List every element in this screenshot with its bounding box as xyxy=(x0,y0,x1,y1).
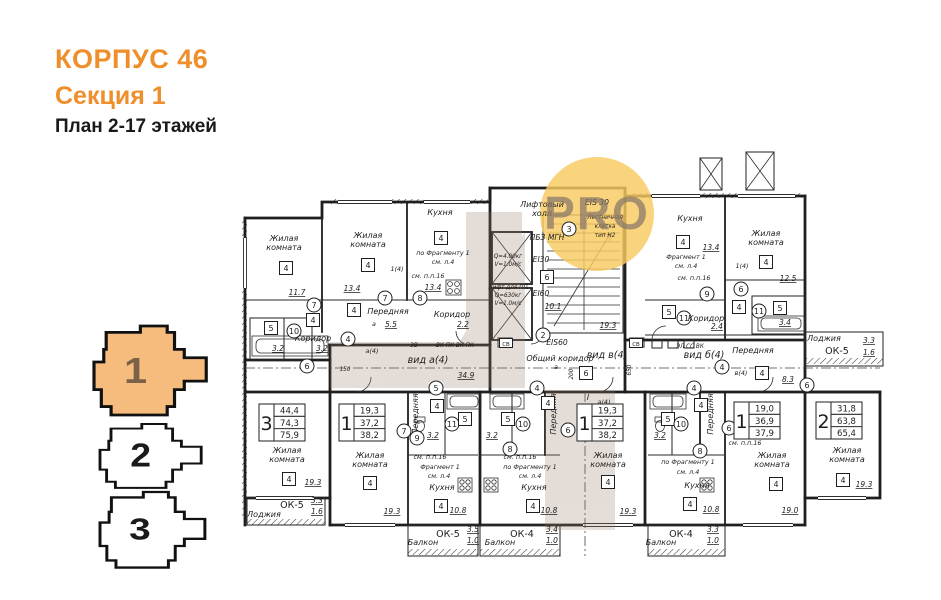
plan-label: Жилаякомната xyxy=(590,451,626,469)
svg-text:4: 4 xyxy=(763,258,768,267)
plan-label: 3.2 xyxy=(427,431,439,440)
svg-text:см. п.п.16: см. п.п.16 xyxy=(729,439,762,447)
plan-label: Кухня xyxy=(677,214,702,223)
svg-text:1.0: 1.0 xyxy=(467,536,479,545)
plan-label: см. п.п.16 xyxy=(678,274,711,282)
svg-text:19,0: 19,0 xyxy=(755,405,774,415)
plan-label: 3.3 xyxy=(311,496,323,505)
plan-label: 19.3 xyxy=(305,478,322,487)
svg-text:4: 4 xyxy=(534,384,539,393)
plan-label: 3.3 xyxy=(863,336,875,345)
svg-text:V=1.0м/с: V=1.0м/с xyxy=(494,262,522,268)
plan-label: 4 xyxy=(307,314,320,327)
svg-text:5: 5 xyxy=(777,304,782,313)
svg-text:4: 4 xyxy=(283,264,288,273)
svg-text:200: 200 xyxy=(569,368,575,379)
svg-text:13.4: 13.4 xyxy=(425,283,442,292)
svg-text:4: 4 xyxy=(840,476,845,485)
floor-plan-drawing: Жилаякомната411.77Жилаякомната413.471(4)… xyxy=(0,0,941,600)
plan-label: Общий коридор xyxy=(526,354,593,363)
svg-text:Жилаякомната: Жилаякомната xyxy=(829,446,865,464)
svg-text:1(4): 1(4) xyxy=(735,262,748,270)
svg-text:вид б(4): вид б(4) xyxy=(684,350,725,361)
svg-text:12.5: 12.5 xyxy=(780,274,797,283)
plan-label: Передняя xyxy=(411,393,420,435)
plan-label: 9 xyxy=(700,287,714,301)
plan-label: см. л.4 xyxy=(432,258,455,266)
svg-text:38,2: 38,2 xyxy=(598,431,617,441)
svg-text:2: 2 xyxy=(540,331,545,340)
plan-label: 6 xyxy=(541,271,554,284)
svg-text:19.3: 19.3 xyxy=(620,507,637,516)
plan-label: а xyxy=(554,363,558,371)
svg-text:1.6: 1.6 xyxy=(311,507,323,516)
svg-text:Передняя: Передняя xyxy=(367,307,409,316)
plan-label: 5 xyxy=(502,413,515,426)
svg-text:1(4): 1(4) xyxy=(390,265,403,273)
plan-label: 200 xyxy=(569,368,575,379)
plan-label: 6 xyxy=(561,423,575,437)
svg-text:150: 150 xyxy=(340,367,351,373)
svg-text:5: 5 xyxy=(666,308,671,317)
svg-text:19.0: 19.0 xyxy=(782,506,799,515)
svg-text:10: 10 xyxy=(518,420,528,429)
plan-label: Кухня xyxy=(427,208,452,217)
svg-text:34.9: 34.9 xyxy=(458,371,475,380)
plan-label: 5 xyxy=(662,413,675,426)
svg-text:Передняя: Передняя xyxy=(411,393,420,435)
plan-label: 10 xyxy=(287,324,301,338)
svg-text:44,4: 44,4 xyxy=(280,407,299,417)
svg-text:6: 6 xyxy=(544,273,549,282)
svg-text:6: 6 xyxy=(804,381,809,390)
svg-text:13.4: 13.4 xyxy=(344,284,361,293)
plan-label: Q=4.00кг xyxy=(494,254,523,260)
svg-text:EI60: EI60 xyxy=(533,289,550,298)
plan-label: 5 xyxy=(459,413,472,426)
svg-text:Балкон: Балкон xyxy=(485,538,515,547)
svg-text:10.1: 10.1 xyxy=(545,302,562,311)
svg-text:а(4): а(4) xyxy=(366,347,379,355)
svg-text:вид в(4): вид в(4) xyxy=(587,350,627,361)
plan-label: 34.9 xyxy=(458,371,475,380)
svg-text:Лоджия: Лоджия xyxy=(806,334,841,343)
plan-label: Жилаякомната xyxy=(754,451,790,469)
plan-label: 10.8 xyxy=(703,505,720,514)
plan-label: вид в(4) xyxy=(587,350,627,361)
svg-text:6: 6 xyxy=(726,424,731,433)
svg-text:Жилаякомната: Жилаякомната xyxy=(590,451,626,469)
plan-label: Лоджия xyxy=(246,510,281,519)
svg-text:Коридор: Коридор xyxy=(295,334,331,343)
plan-label: 13.4 xyxy=(344,284,361,293)
svg-text:4: 4 xyxy=(680,238,685,247)
svg-text:38,2: 38,2 xyxy=(360,431,379,441)
plan-label: 1.0 xyxy=(546,536,558,545)
svg-text:Жилаякомната: Жилаякомната xyxy=(350,231,386,249)
svg-text:4: 4 xyxy=(367,479,372,488)
plan-label: по Фрагменту 1 xyxy=(503,463,556,471)
svg-text:ВК ПК ВК ПК: ВК ПК ВК ПК xyxy=(436,343,475,349)
svg-text:Жилаякомната: Жилаякомната xyxy=(748,229,784,247)
plan-label: 13.4 xyxy=(703,243,720,252)
plan-label: 19.3 xyxy=(856,480,873,489)
plan-label: 4 xyxy=(364,477,377,490)
plan-label: см. л.4 xyxy=(519,472,542,480)
svg-text:5: 5 xyxy=(268,324,273,333)
plan-label: Коридор xyxy=(434,310,470,319)
plan-label: 7 xyxy=(397,424,411,438)
plan-label: 4 xyxy=(435,500,448,513)
svg-text:1: 1 xyxy=(340,413,352,435)
plan-label: 650 xyxy=(627,364,633,375)
plan-label: 6 xyxy=(800,378,814,392)
svg-text:4: 4 xyxy=(773,480,778,489)
plan-label: 4 xyxy=(283,473,296,486)
plan-label: 4 xyxy=(837,474,850,487)
plan-label: 4 xyxy=(602,476,615,489)
plan-label: вид б(4) xyxy=(684,350,725,361)
plan-label: Лоджия xyxy=(806,334,841,343)
svg-text:Фрагмент 1: Фрагмент 1 xyxy=(666,253,706,261)
plan-label: 1.0 xyxy=(467,536,479,545)
plan-label: а xyxy=(372,320,376,328)
svg-text:8: 8 xyxy=(697,447,702,456)
plan-label: 4 xyxy=(695,399,708,412)
plan-label: 4 xyxy=(280,262,293,275)
svg-text:4: 4 xyxy=(687,500,692,509)
plan-label: 4 xyxy=(756,367,769,380)
plan-label: Лифт для ПП xyxy=(487,285,528,291)
svg-text:EIS60: EIS60 xyxy=(546,338,568,347)
svg-text:11: 11 xyxy=(754,307,764,316)
svg-text:4: 4 xyxy=(286,475,291,484)
plan-label: 5.5 xyxy=(385,320,397,329)
plan-label: по Фрагменту 1 xyxy=(661,458,714,466)
plan-label: Балкон xyxy=(408,538,438,547)
svg-text:по Фрагменту 1: по Фрагменту 1 xyxy=(503,463,556,471)
plan-label: 3.2 xyxy=(272,344,284,353)
svg-text:37,9: 37,9 xyxy=(755,429,774,439)
svg-text:8: 8 xyxy=(417,294,422,303)
svg-text:Кухня: Кухня xyxy=(521,483,546,492)
plan-label: EIS60 xyxy=(546,338,568,347)
svg-text:650: 650 xyxy=(627,364,633,375)
svg-text:63,8: 63,8 xyxy=(837,417,856,427)
svg-text:Кухня: Кухня xyxy=(677,214,702,223)
svg-text:по Фрагменту 1: по Фрагменту 1 xyxy=(416,249,469,257)
svg-text:19,3: 19,3 xyxy=(598,407,617,417)
plan-label: 5 xyxy=(774,302,787,315)
svg-text:Лифт для ПП: Лифт для ПП xyxy=(487,285,528,291)
plan-label: 4 xyxy=(542,397,555,410)
plan-label: см. л.4 xyxy=(428,472,451,480)
plan-label: 4 xyxy=(341,332,355,346)
svg-text:7: 7 xyxy=(311,301,316,310)
svg-text:11.7: 11.7 xyxy=(289,288,306,297)
svg-text:Жилаякомната: Жилаякомната xyxy=(269,446,305,464)
svg-text:6: 6 xyxy=(738,285,743,294)
svg-text:3.3: 3.3 xyxy=(863,336,875,345)
plan-label: 4 xyxy=(684,498,697,511)
svg-text:см. л.4: см. л.4 xyxy=(519,472,542,480)
svg-text:9: 9 xyxy=(414,434,419,443)
svg-text:см. л.4: см. л.4 xyxy=(428,472,451,480)
svg-text:19.3: 19.3 xyxy=(856,480,873,489)
svg-text:8.3: 8.3 xyxy=(782,375,794,384)
watermark-pro-text: PRO xyxy=(544,187,650,239)
svg-text:3.2: 3.2 xyxy=(272,344,284,353)
plan-label: см. п.п.16 xyxy=(729,439,762,447)
plan-label: 4 xyxy=(530,381,544,395)
svg-text:74,3: 74,3 xyxy=(280,419,299,429)
plan-label: 5 xyxy=(429,381,443,395)
svg-text:Балкон: Балкон xyxy=(646,538,676,547)
plan-label: 9 xyxy=(410,431,424,445)
plan-label: 4 xyxy=(770,478,783,491)
svg-text:75,9: 75,9 xyxy=(280,431,299,441)
svg-text:см. п.п.16: см. п.п.16 xyxy=(678,274,711,282)
svg-text:4: 4 xyxy=(351,306,356,315)
plan-label: 6 xyxy=(300,359,314,373)
svg-text:3.3: 3.3 xyxy=(311,496,323,505)
plan-label: Q=630кг xyxy=(495,293,523,299)
svg-text:4: 4 xyxy=(691,384,696,393)
svg-text:5: 5 xyxy=(505,415,510,424)
plan-label: Жилаякомната xyxy=(266,234,302,252)
svg-text:см. л.4: см. л.4 xyxy=(432,258,455,266)
svg-text:вид а(4): вид а(4) xyxy=(408,355,449,366)
svg-text:4: 4 xyxy=(605,478,610,487)
plan-label: Передняя xyxy=(367,307,409,316)
svg-text:2.2: 2.2 xyxy=(457,320,469,329)
plan-label: ЭЛ СС ВК xyxy=(675,344,705,350)
plan-label: а(4) xyxy=(366,347,379,355)
svg-text:3.5: 3.5 xyxy=(467,525,479,534)
plan-label: 3.2 xyxy=(316,344,328,353)
plan-label: 4 xyxy=(348,304,361,317)
svg-text:5: 5 xyxy=(665,415,670,424)
svg-text:5: 5 xyxy=(433,384,438,393)
svg-text:6: 6 xyxy=(304,362,309,371)
plan-label: 3.4 xyxy=(779,318,791,327)
plan-label: см. п.п.16 xyxy=(414,453,447,461)
svg-text:4: 4 xyxy=(545,399,550,408)
svg-text:4: 4 xyxy=(438,234,443,243)
plan-label: ОК-5 xyxy=(436,529,460,540)
plan-label: 10.8 xyxy=(541,506,558,515)
svg-text:19.3: 19.3 xyxy=(384,507,401,516)
plan-label: 10.8 xyxy=(450,506,467,515)
plan-label: Жилаякомната xyxy=(350,231,386,249)
plan-label: 4 xyxy=(760,256,773,269)
plan-label: ОК-5 xyxy=(825,346,849,357)
plan-label: 3.2 xyxy=(486,431,498,440)
plan-label: Балкон xyxy=(646,538,676,547)
plan-label: 11 xyxy=(752,304,766,318)
svg-text:31,8: 31,8 xyxy=(837,405,856,415)
plan-label: 3.2 xyxy=(654,431,666,440)
plan-label: см. п.п.16 xyxy=(504,453,537,461)
plan-label: 4 xyxy=(677,236,690,249)
svg-text:Коридор: Коридор xyxy=(434,310,470,319)
plan-label: 1.6 xyxy=(311,507,323,516)
svg-text:2: 2 xyxy=(817,411,829,433)
svg-text:Q=630кг: Q=630кг xyxy=(495,293,523,299)
svg-text:4: 4 xyxy=(719,363,724,372)
plan-label: Кухня xyxy=(429,483,454,492)
svg-text:см. л.4: см. л.4 xyxy=(675,262,698,270)
svg-text:13.4: 13.4 xyxy=(703,243,720,252)
plan-label: EI60 xyxy=(533,289,550,298)
plan-label: в(4) xyxy=(735,369,748,377)
svg-text:Балкон: Балкон xyxy=(408,538,438,547)
apartment-stamp: 119,337,238,2 xyxy=(339,404,385,441)
plan-label: 19.3 xyxy=(620,507,637,516)
svg-text:4: 4 xyxy=(759,369,764,378)
svg-text:Кухня: Кухня xyxy=(684,481,709,490)
plan-label: 12.5 xyxy=(780,274,797,283)
plan-label: 11 xyxy=(445,417,459,431)
plan-label: Жилаякомната xyxy=(748,229,784,247)
svg-text:19,3: 19,3 xyxy=(360,407,379,417)
svg-text:Кухня: Кухня xyxy=(429,483,454,492)
plan-label: Жилаякомната xyxy=(269,446,305,464)
plan-label: 19.3 xyxy=(384,507,401,516)
plan-label: 4 xyxy=(431,400,444,413)
apartment-stamp: 344,474,375,9 xyxy=(259,404,305,441)
svg-text:см. п.п.16: см. п.п.16 xyxy=(414,453,447,461)
svg-text:6: 6 xyxy=(565,426,570,435)
svg-text:3.2: 3.2 xyxy=(316,344,328,353)
plan-label: по Фрагменту 1 xyxy=(416,249,469,257)
floor-plan-page: КОРПУС 46 Секция 1 План 2-17 этажей 1 2 … xyxy=(0,0,941,600)
svg-text:10: 10 xyxy=(676,420,686,429)
svg-text:а: а xyxy=(372,320,376,328)
svg-text:1: 1 xyxy=(578,413,590,435)
plan-label: 7 xyxy=(307,298,321,312)
svg-text:см. п.п.16: см. п.п.16 xyxy=(504,453,537,461)
svg-text:Жилаякомната: Жилаякомната xyxy=(352,451,388,469)
svg-text:3.4: 3.4 xyxy=(779,318,791,327)
svg-text:Фрагмент 1: Фрагмент 1 xyxy=(420,463,460,471)
svg-text:3.2: 3.2 xyxy=(486,431,498,440)
plan-label: V=1.0м/с xyxy=(494,301,522,307)
svg-text:3: 3 xyxy=(260,413,272,435)
svg-text:10.8: 10.8 xyxy=(450,506,467,515)
plan-label: 8.3 xyxy=(782,375,794,384)
plan-label: см. л.4 xyxy=(675,262,698,270)
plan-label: 4 xyxy=(435,232,448,245)
svg-text:ЭЛ СС ВК: ЭЛ СС ВК xyxy=(675,344,705,350)
svg-text:V=1.0м/с: V=1.0м/с xyxy=(494,301,522,307)
plan-label: Коридор xyxy=(295,334,331,343)
plan-label: 1.6 xyxy=(863,348,875,357)
plan-label: 7 xyxy=(378,291,392,305)
svg-text:1.0: 1.0 xyxy=(546,536,558,545)
svg-text:Лоджия: Лоджия xyxy=(246,510,281,519)
plan-label: 19.3 xyxy=(600,321,617,330)
svg-text:СВ: СВ xyxy=(632,342,640,348)
svg-text:19.3: 19.3 xyxy=(600,321,617,330)
svg-text:см. л.4: см. л.4 xyxy=(677,468,700,476)
plan-label: Жилаякомната xyxy=(352,451,388,469)
svg-text:36,9: 36,9 xyxy=(755,417,774,427)
plan-label: Передняя xyxy=(732,346,774,355)
plan-label: 4 xyxy=(733,301,746,314)
apartment-stamp: 119,036,937,9 xyxy=(734,402,780,439)
svg-text:4: 4 xyxy=(698,401,703,410)
plan-label: 4 xyxy=(362,259,375,272)
svg-text:Q=4.00кг: Q=4.00кг xyxy=(494,254,523,260)
plan-label: Кухня xyxy=(521,483,546,492)
plan-label: 11.7 xyxy=(289,288,306,297)
plan-label: Кухня xyxy=(684,481,709,490)
svg-text:5.5: 5.5 xyxy=(385,320,397,329)
plan-label: 2.4 xyxy=(711,322,723,331)
plan-label: 3В xyxy=(410,343,418,349)
svg-text:10.8: 10.8 xyxy=(703,505,720,514)
svg-text:Жилаякомната: Жилаякомната xyxy=(754,451,790,469)
plan-label: 1(4) xyxy=(390,265,403,273)
svg-text:3В: 3В xyxy=(410,343,418,349)
svg-text:3.2: 3.2 xyxy=(654,431,666,440)
svg-text:по Фрагменту 1: по Фрагменту 1 xyxy=(661,458,714,466)
svg-text:1.6: 1.6 xyxy=(863,348,875,357)
svg-text:см. п.п.16: см. п.п.16 xyxy=(412,272,445,280)
svg-text:4: 4 xyxy=(736,303,741,312)
plan-label: 8 xyxy=(413,291,427,305)
plan-label: 10 xyxy=(516,417,530,431)
svg-text:65,4: 65,4 xyxy=(837,429,856,439)
plan-label: 1.0 xyxy=(707,536,719,545)
apartment-stamp: 119,337,238,2 xyxy=(577,404,623,441)
svg-text:4: 4 xyxy=(438,502,443,511)
svg-text:3.2: 3.2 xyxy=(427,431,439,440)
svg-text:9: 9 xyxy=(704,290,709,299)
plan-label: 6 xyxy=(580,367,593,380)
plan-label: см. п.п.16 xyxy=(412,272,445,280)
svg-text:6: 6 xyxy=(583,369,588,378)
svg-text:Передняя: Передняя xyxy=(732,346,774,355)
plan-label: 4 xyxy=(687,381,701,395)
plan-label: 13.4 xyxy=(425,283,442,292)
plan-label: Балкон xyxy=(485,538,515,547)
svg-text:11: 11 xyxy=(447,420,457,429)
plan-label: см. л.4 xyxy=(677,468,700,476)
svg-text:ОК-5: ОК-5 xyxy=(825,346,849,357)
svg-text:ОК-5: ОК-5 xyxy=(280,500,304,511)
svg-text:37,2: 37,2 xyxy=(598,419,617,429)
svg-text:Кухня: Кухня xyxy=(427,208,452,217)
svg-text:Общий коридор: Общий коридор xyxy=(526,354,593,363)
svg-text:4: 4 xyxy=(530,502,535,511)
plan-label: СВ xyxy=(630,339,643,348)
plan-label: Фрагмент 1 xyxy=(666,253,706,261)
svg-text:СВ: СВ xyxy=(502,342,510,348)
plan-label: 2.2 xyxy=(457,320,469,329)
svg-text:3.4: 3.4 xyxy=(546,525,558,534)
svg-text:1: 1 xyxy=(735,411,747,433)
svg-text:37,2: 37,2 xyxy=(360,419,379,429)
plan-label: 3.4 xyxy=(546,525,558,534)
plan-label: 1(4) xyxy=(735,262,748,270)
svg-text:7: 7 xyxy=(382,294,387,303)
svg-text:Жилаякомната: Жилаякомната xyxy=(266,234,302,252)
svg-text:19.3: 19.3 xyxy=(305,478,322,487)
svg-text:а: а xyxy=(554,363,558,371)
svg-text:4: 4 xyxy=(310,316,315,325)
